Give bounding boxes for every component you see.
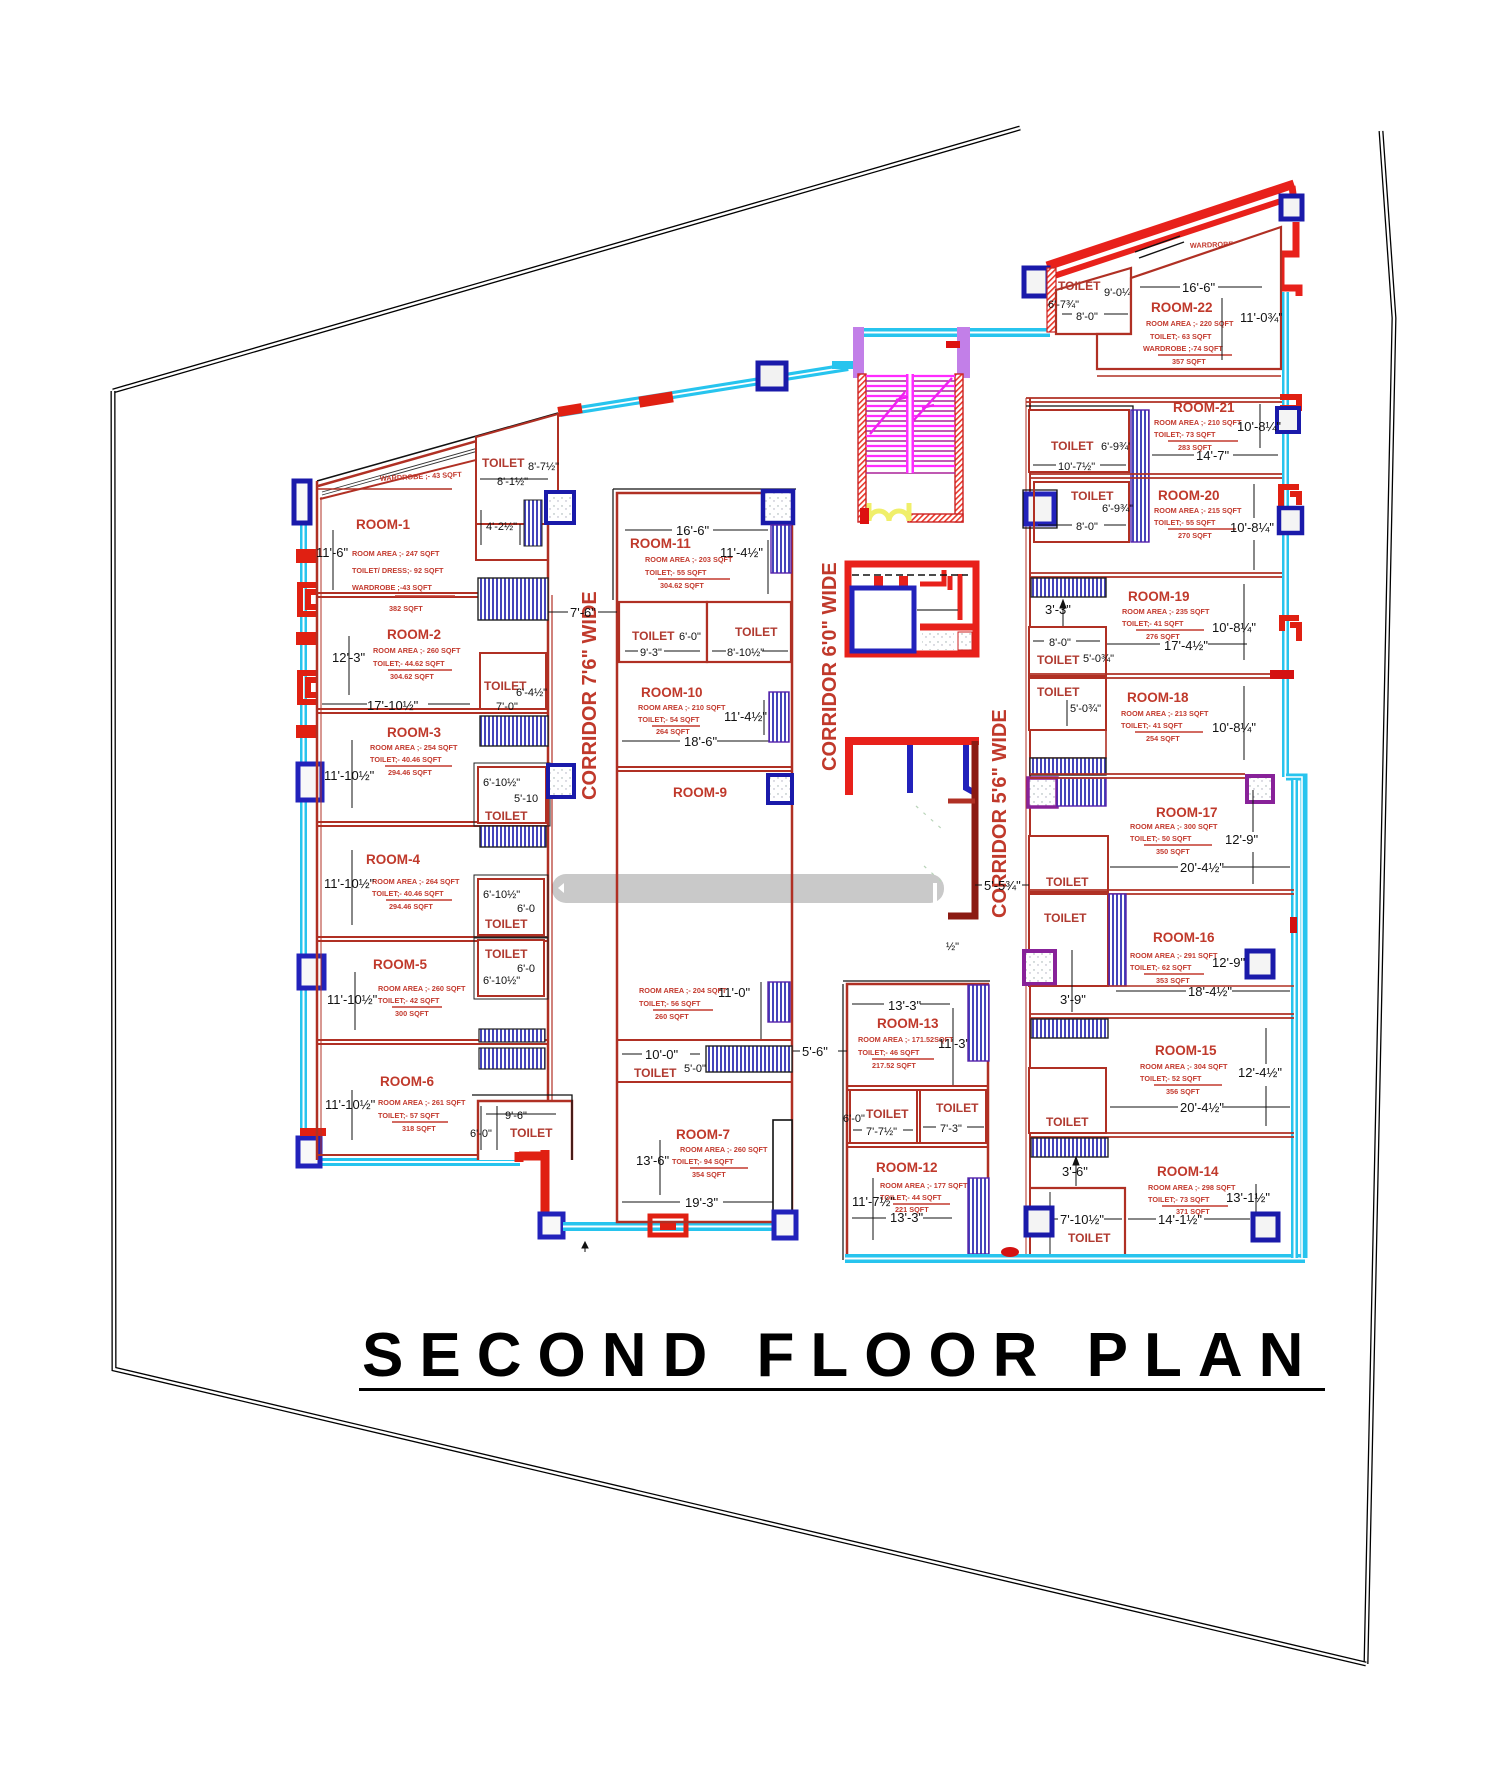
- svg-text:ROOM AREA ;- 260 SQFT: ROOM AREA ;- 260 SQFT: [680, 1145, 768, 1154]
- svg-text:ROOM-21: ROOM-21: [1173, 400, 1235, 415]
- svg-text:TOILET;- 41 SQFT: TOILET;- 41 SQFT: [1121, 721, 1183, 730]
- svg-text:ROOM-1: ROOM-1: [356, 517, 410, 532]
- svg-text:TOILET: TOILET: [634, 1066, 677, 1080]
- svg-text:5'-0¾": 5'-0¾": [1083, 653, 1114, 665]
- svg-text:11'-4½": 11'-4½": [724, 709, 767, 724]
- svg-text:10'-0": 10'-0": [645, 1047, 679, 1062]
- svg-text:TOILET: TOILET: [1051, 439, 1094, 453]
- svg-text:10'-8¼": 10'-8¼": [1212, 620, 1256, 635]
- svg-text:ROOM AREA ;- 247 SQFT: ROOM AREA ;- 247 SQFT: [352, 549, 440, 558]
- svg-text:WARDROBE ;-74 SQFT: WARDROBE ;-74 SQFT: [1143, 344, 1223, 353]
- svg-text:ROOM-22: ROOM-22: [1151, 300, 1213, 315]
- svg-text:350 SQFT: 350 SQFT: [1156, 847, 1190, 856]
- svg-text:12'-9": 12'-9": [1212, 955, 1246, 970]
- svg-text:ROOM AREA ;- 264 SQFT: ROOM AREA ;- 264 SQFT: [372, 877, 460, 886]
- svg-text:TOILET: TOILET: [1044, 911, 1087, 925]
- svg-text:ROOM-4: ROOM-4: [366, 852, 420, 867]
- svg-text:7'-0": 7'-0": [496, 701, 518, 713]
- svg-text:ROOM AREA ;- 204 SQFT: ROOM AREA ;- 204 SQFT: [639, 986, 727, 995]
- svg-text:12'-9": 12'-9": [1225, 832, 1259, 847]
- svg-text:TOILET: TOILET: [1046, 875, 1089, 889]
- svg-text:11'-4½": 11'-4½": [720, 545, 763, 560]
- svg-text:ROOM AREA ;- 291 SQFT: ROOM AREA ;- 291 SQFT: [1130, 951, 1218, 960]
- svg-text:17'-10½": 17'-10½": [367, 698, 419, 713]
- svg-text:ROOM-10: ROOM-10: [641, 685, 703, 700]
- svg-text:18'-6": 18'-6": [684, 734, 718, 749]
- svg-text:5'-6": 5'-6": [802, 1044, 828, 1059]
- svg-text:6'-10½": 6'-10½": [483, 777, 520, 789]
- svg-text:ROOM AREA ;- 260 SQFT: ROOM AREA ;- 260 SQFT: [373, 646, 461, 655]
- svg-text:11'-0¾": 11'-0¾": [1240, 310, 1283, 325]
- svg-text:8'-7½": 8'-7½": [528, 461, 559, 473]
- svg-text:TOILET;- 55 SQFT: TOILET;- 55 SQFT: [645, 568, 707, 577]
- svg-text:TOILET;- 54 SQFT: TOILET;- 54 SQFT: [638, 715, 700, 724]
- svg-text:11'-10½": 11'-10½": [324, 768, 375, 783]
- svg-text:TOILET;- 40.46 SQFT: TOILET;- 40.46 SQFT: [372, 889, 444, 898]
- svg-text:ROOM-7: ROOM-7: [676, 1127, 730, 1142]
- svg-text:11'-10½": 11'-10½": [324, 876, 375, 891]
- svg-text:14'-7": 14'-7": [1196, 448, 1230, 463]
- svg-text:½": ½": [946, 941, 959, 953]
- svg-text:294.46 SQFT: 294.46 SQFT: [388, 768, 432, 777]
- svg-text:19'-3": 19'-3": [685, 1195, 719, 1210]
- svg-text:6'-0: 6'-0: [517, 903, 535, 915]
- svg-text:357 SQFT: 357 SQFT: [1172, 357, 1206, 366]
- svg-text:ROOM AREA ;- 215 SQFT: ROOM AREA ;- 215 SQFT: [1154, 506, 1242, 515]
- svg-text:ROOM-19: ROOM-19: [1128, 589, 1190, 604]
- svg-text:TOILET;- 44.62 SQFT: TOILET;- 44.62 SQFT: [373, 659, 445, 668]
- svg-text:TOILET/ DRESS;- 92 SQFT: TOILET/ DRESS;- 92 SQFT: [352, 566, 444, 575]
- svg-text:4'-2½": 4'-2½": [486, 521, 517, 533]
- svg-text:6'-0: 6'-0: [517, 963, 535, 975]
- svg-text:10'-8¼": 10'-8¼": [1237, 419, 1281, 434]
- svg-text:ROOM-11: ROOM-11: [630, 536, 691, 551]
- svg-text:13'-6": 13'-6": [636, 1153, 670, 1168]
- svg-text:ROOM-9: ROOM-9: [673, 785, 727, 800]
- svg-text:ROOM AREA ;- 177 SQFT: ROOM AREA ;- 177 SQFT: [880, 1181, 968, 1190]
- svg-text:WARDROBE ;-43 SQFT: WARDROBE ;-43 SQFT: [352, 583, 432, 592]
- svg-text:TOILET: TOILET: [866, 1107, 909, 1121]
- svg-text:11'-10½": 11'-10½": [327, 992, 378, 1007]
- svg-text:7'-3": 7'-3": [940, 1123, 962, 1135]
- svg-text:ROOM-3: ROOM-3: [387, 725, 441, 740]
- svg-text:ROOM-18: ROOM-18: [1127, 690, 1189, 705]
- svg-text:TOILET;- 62 SQFT: TOILET;- 62 SQFT: [1130, 963, 1192, 972]
- svg-text:TOILET;- 73 SQFT: TOILET;- 73 SQFT: [1154, 430, 1216, 439]
- svg-text:6'-0": 6'-0": [679, 631, 701, 643]
- svg-text:TOILET: TOILET: [1068, 1231, 1111, 1245]
- svg-text:3'-6": 3'-6": [1062, 1164, 1088, 1179]
- svg-text:ROOM-13: ROOM-13: [877, 1016, 939, 1031]
- svg-text:ROOM AREA ;- 213 SQFT: ROOM AREA ;- 213 SQFT: [1121, 709, 1209, 718]
- svg-text:7'-10½": 7'-10½": [1060, 1212, 1104, 1227]
- svg-text:6'-0": 6'-0": [843, 1113, 865, 1125]
- svg-text:8'-0": 8'-0": [1049, 637, 1071, 649]
- svg-text:6'-7¾": 6'-7¾": [1048, 299, 1079, 311]
- svg-text:8'-1½": 8'-1½": [497, 476, 528, 488]
- svg-text:ROOM-15: ROOM-15: [1155, 1043, 1217, 1058]
- svg-text:CORRIDOR 7'6" WIDE: CORRIDOR 7'6" WIDE: [579, 591, 601, 800]
- svg-text:TOILET: TOILET: [1071, 489, 1114, 503]
- svg-text:300 SQFT: 300 SQFT: [395, 1009, 429, 1018]
- svg-text:TOILET;- 56 SQFT: TOILET;- 56 SQFT: [639, 999, 701, 1008]
- svg-text:ROOM-14: ROOM-14: [1157, 1164, 1219, 1179]
- svg-text:ROOM-12: ROOM-12: [876, 1160, 938, 1175]
- svg-text:5'-0¾": 5'-0¾": [1070, 703, 1101, 715]
- svg-text:10'-7½": 10'-7½": [1058, 461, 1095, 473]
- svg-text:353 SQFT: 353 SQFT: [1156, 976, 1190, 985]
- svg-text:14'-1½": 14'-1½": [1158, 1212, 1202, 1227]
- svg-text:6'-4½": 6'-4½": [516, 687, 547, 699]
- svg-text:270 SQFT: 270 SQFT: [1178, 531, 1212, 540]
- svg-text:294.46 SQFT: 294.46 SQFT: [389, 902, 433, 911]
- svg-text:TOILET: TOILET: [936, 1101, 979, 1115]
- svg-text:7'-7½": 7'-7½": [866, 1126, 897, 1138]
- svg-text:TOILET: TOILET: [510, 1126, 553, 1140]
- svg-text:20'-4½": 20'-4½": [1180, 860, 1224, 875]
- svg-text:TOILET: TOILET: [1037, 653, 1080, 667]
- svg-text:TOILET: TOILET: [1058, 279, 1101, 293]
- svg-text:TOILET: TOILET: [632, 629, 675, 643]
- svg-text:3'-9": 3'-9": [1060, 992, 1086, 1007]
- svg-text:8'-0": 8'-0": [1076, 311, 1098, 323]
- svg-text:ROOM AREA ;- 210 SQFT: ROOM AREA ;- 210 SQFT: [638, 703, 726, 712]
- svg-text:304.62 SQFT: 304.62 SQFT: [660, 581, 704, 590]
- svg-text:11'-7½": 11'-7½": [852, 1194, 895, 1209]
- svg-text:ROOM-17: ROOM-17: [1156, 805, 1218, 820]
- svg-text:ROOM AREA ;- 261 SQFT: ROOM AREA ;- 261 SQFT: [378, 1098, 466, 1107]
- svg-text:318 SQFT: 318 SQFT: [402, 1124, 436, 1133]
- svg-text:7'-6": 7'-6": [570, 605, 596, 620]
- svg-text:6'-9¾": 6'-9¾": [1102, 503, 1133, 515]
- svg-text:20'-4½": 20'-4½": [1180, 1100, 1224, 1115]
- svg-text:217.52 SQFT: 217.52 SQFT: [872, 1061, 916, 1070]
- svg-text:ROOM-5: ROOM-5: [373, 957, 427, 972]
- svg-text:8'-10½": 8'-10½": [727, 647, 764, 659]
- svg-text:TOILET;- 55 SQFT: TOILET;- 55 SQFT: [1154, 518, 1216, 527]
- svg-text:TOILET;- 94 SQFT: TOILET;- 94 SQFT: [672, 1157, 734, 1166]
- svg-text:TOILET: TOILET: [1046, 1115, 1089, 1129]
- svg-text:13'-3": 13'-3": [888, 998, 922, 1013]
- svg-text:10'-8¼": 10'-8¼": [1212, 720, 1256, 735]
- svg-text:CORRIDOR 6'0" WIDE: CORRIDOR 6'0" WIDE: [819, 562, 841, 771]
- svg-text:10'-8¼": 10'-8¼": [1230, 520, 1274, 535]
- svg-text:13'-1½": 13'-1½": [1226, 1190, 1270, 1205]
- svg-text:17'-4½": 17'-4½": [1164, 638, 1208, 653]
- svg-text:6'-10½": 6'-10½": [483, 889, 520, 901]
- svg-text:TOILET;- 46 SQFT: TOILET;- 46 SQFT: [858, 1048, 920, 1057]
- svg-text:354 SQFT: 354 SQFT: [692, 1170, 726, 1179]
- svg-text:11'-0": 11'-0": [718, 985, 751, 1000]
- svg-text:TOILET: TOILET: [1037, 685, 1080, 699]
- svg-text:ROOM AREA ;- 300 SQFT: ROOM AREA ;- 300 SQFT: [1130, 822, 1218, 831]
- svg-text:TOILET: TOILET: [482, 456, 525, 470]
- svg-text:260 SQFT: 260 SQFT: [655, 1012, 689, 1021]
- svg-text:ROOM AREA ;- 260 SQFT: ROOM AREA ;- 260 SQFT: [378, 984, 466, 993]
- svg-text:ROOM-20: ROOM-20: [1158, 488, 1220, 503]
- svg-text:ROOM AREA ;- 235 SQFT: ROOM AREA ;- 235 SQFT: [1122, 607, 1210, 616]
- svg-text:TOILET;- 73 SQFT: TOILET;- 73 SQFT: [1148, 1195, 1210, 1204]
- svg-text:11'-3": 11'-3": [938, 1036, 971, 1051]
- svg-text:254 SQFT: 254 SQFT: [1146, 734, 1180, 743]
- svg-text:8'-0": 8'-0": [1076, 521, 1098, 533]
- svg-text:ROOM AREA ;- 220 SQFT: ROOM AREA ;- 220 SQFT: [1146, 319, 1234, 328]
- svg-text:11'-10½": 11'-10½": [325, 1097, 376, 1112]
- svg-text:304.62 SQFT: 304.62 SQFT: [390, 672, 434, 681]
- svg-text:TOILET: TOILET: [485, 809, 528, 823]
- svg-text:ROOM AREA ;- 304 SQFT: ROOM AREA ;- 304 SQFT: [1140, 1062, 1228, 1071]
- svg-text:11'-6": 11'-6": [316, 545, 349, 560]
- svg-text:3'-3": 3'-3": [1045, 602, 1071, 617]
- svg-text:ROOM-2: ROOM-2: [387, 627, 441, 642]
- svg-text:5'-10: 5'-10: [514, 793, 538, 805]
- svg-text:TOILET;- 40.46 SQFT: TOILET;- 40.46 SQFT: [370, 755, 442, 764]
- svg-text:TOILET: TOILET: [735, 625, 778, 639]
- svg-text:ROOM AREA ;- 298 SQFT: ROOM AREA ;- 298 SQFT: [1148, 1183, 1236, 1192]
- svg-text:9'-3": 9'-3": [640, 647, 662, 659]
- svg-text:5'-5¾": 5'-5¾": [984, 878, 1021, 893]
- svg-text:9'-6": 9'-6": [505, 1110, 527, 1122]
- svg-text:TOILET;- 52 SQFT: TOILET;- 52 SQFT: [1140, 1074, 1202, 1083]
- svg-text:6'-10½": 6'-10½": [483, 975, 520, 987]
- svg-text:12'-4½": 12'-4½": [1238, 1065, 1282, 1080]
- svg-text:ROOM-16: ROOM-16: [1153, 930, 1215, 945]
- svg-text:TOILET: TOILET: [485, 917, 528, 931]
- svg-text:TOILET;- 42 SQFT: TOILET;- 42 SQFT: [378, 996, 440, 1005]
- svg-text:SECOND FLOOR PLAN: SECOND FLOOR PLAN: [362, 1321, 1319, 1390]
- svg-text:TOILET;- 50 SQFT: TOILET;- 50 SQFT: [1130, 834, 1192, 843]
- svg-text:ROOM AREA ;- 210 SQFT: ROOM AREA ;- 210 SQFT: [1154, 418, 1242, 427]
- svg-text:16'-6": 16'-6": [676, 523, 710, 538]
- svg-text:TOILET: TOILET: [485, 947, 528, 961]
- svg-text:382 SQFT: 382 SQFT: [389, 604, 423, 613]
- svg-text:TOILET;- 57 SQFT: TOILET;- 57 SQFT: [378, 1111, 440, 1120]
- svg-text:5'-0": 5'-0": [684, 1063, 706, 1075]
- svg-text:TOILET;- 63 SQFT: TOILET;- 63 SQFT: [1150, 332, 1212, 341]
- svg-text:13'-3": 13'-3": [890, 1210, 924, 1225]
- svg-text:16'-6": 16'-6": [1182, 280, 1216, 295]
- svg-text:TOILET;- 41 SQFT: TOILET;- 41 SQFT: [1122, 619, 1184, 628]
- svg-text:ROOM-6: ROOM-6: [380, 1074, 434, 1089]
- svg-text:6'-9¾": 6'-9¾": [1101, 441, 1132, 453]
- svg-text:356 SQFT: 356 SQFT: [1166, 1087, 1200, 1096]
- svg-text:ROOM AREA ;- 254 SQFT: ROOM AREA ;- 254 SQFT: [370, 743, 458, 752]
